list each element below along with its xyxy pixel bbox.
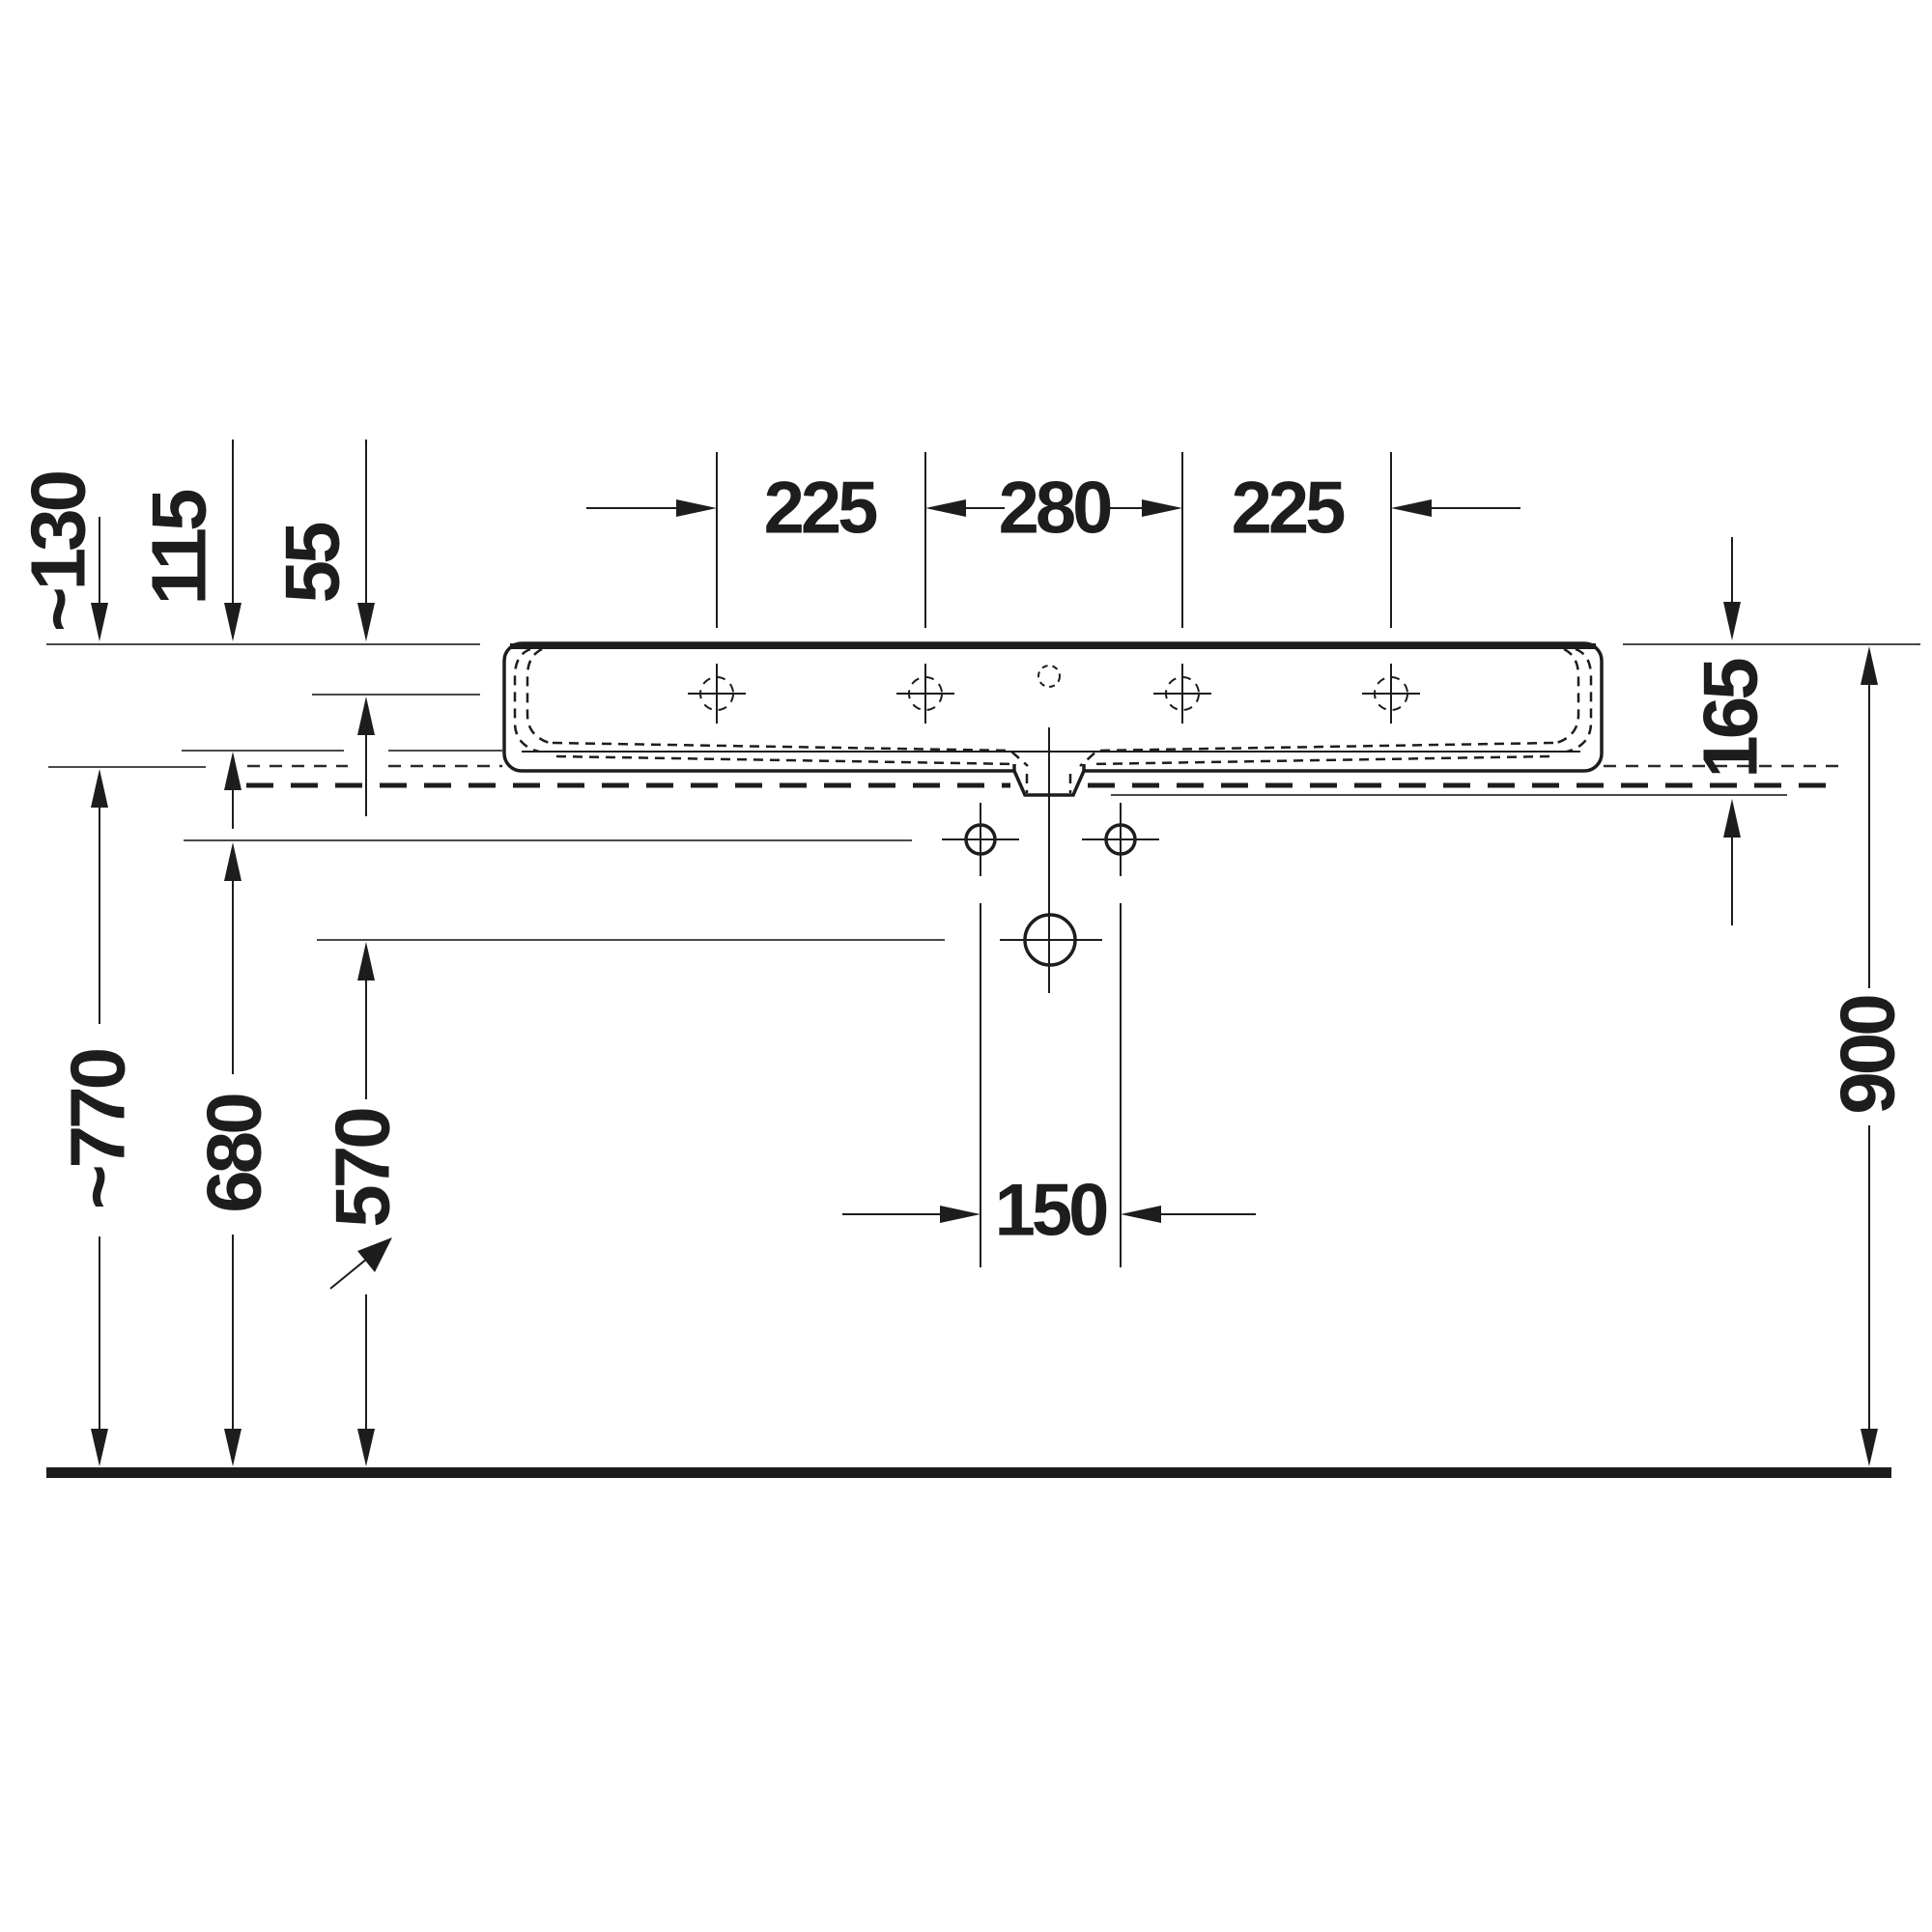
- arrowhead-up-icon: [91, 769, 108, 808]
- bowl-bottom-lower-right: [1092, 756, 1549, 764]
- bowl-wall-right-inner: [1553, 649, 1578, 744]
- arrowhead-down-icon: [357, 603, 375, 641]
- arrowhead-right-icon: [676, 499, 717, 517]
- dim-label-770: ~770: [55, 1049, 141, 1209]
- dim-label-680: 680: [191, 1094, 277, 1213]
- technical-drawing-page: 225 280 225 ~130 115 55 ~770 680 570: [0, 0, 1932, 1932]
- dim-label-225-left: 225: [764, 468, 878, 550]
- arrowhead-up-icon: [224, 752, 241, 790]
- arrowhead-up-icon: [1861, 646, 1878, 685]
- arrowhead-up-icon: [357, 942, 375, 980]
- arrowhead-down-icon: [1723, 602, 1741, 640]
- reference-lines: [46, 644, 1920, 940]
- basin-outline: [504, 643, 1602, 776]
- arrowhead-left-icon: [1391, 499, 1432, 517]
- arrowhead-up-icon: [224, 842, 241, 881]
- arrowhead-left-icon: [925, 499, 966, 517]
- arrowhead-right-icon: [940, 1206, 980, 1223]
- dim-label-570: 570: [320, 1109, 406, 1228]
- center-hole-marker: [1038, 666, 1060, 687]
- dim-label-115: 115: [136, 490, 222, 606]
- dim-label-165: 165: [1688, 659, 1774, 779]
- dim-label-130: ~130: [15, 471, 101, 632]
- dim-label-55: 55: [270, 523, 355, 603]
- faucet-hole-markers: [688, 664, 1420, 724]
- dimension-heights-left: ~770 680 570: [55, 769, 406, 1466]
- faucet-hole-2: [896, 664, 954, 724]
- arrowhead-up-icon: [1723, 799, 1741, 838]
- dim-label-150: 150: [995, 1170, 1108, 1252]
- faucet-hole-4: [1362, 664, 1420, 724]
- arrowhead-up-icon: [357, 696, 375, 735]
- faucet-hole-3: [1153, 664, 1211, 724]
- dimension-900: 900: [1825, 646, 1911, 1466]
- dimension-top-row: 225 280 225: [586, 452, 1520, 628]
- fixing-bolt-left: [942, 803, 1019, 876]
- washbasin-dimension-diagram: 225 280 225 ~130 115 55 ~770 680 570: [0, 0, 1932, 1932]
- arrowhead-right-icon: [1142, 499, 1182, 517]
- dimension-165: 165: [1688, 537, 1774, 925]
- arrowhead-down-icon: [91, 1429, 108, 1466]
- faucet-hole-1: [688, 664, 746, 724]
- diagonal-arrow-ne-icon: [357, 1237, 392, 1272]
- bowl-wall-left-inner: [527, 649, 553, 744]
- dim-label-280: 280: [999, 468, 1112, 550]
- fixing-bolt-right: [1082, 803, 1159, 876]
- dim-label-225-right: 225: [1232, 468, 1346, 550]
- arrowhead-down-icon: [1861, 1429, 1878, 1466]
- dimension-left-upper: ~130 115 55: [15, 440, 376, 829]
- dim-label-900: 900: [1825, 996, 1911, 1115]
- arrowhead-down-icon: [224, 603, 241, 641]
- bowl-bottom-lower-left: [556, 756, 1016, 764]
- arrowhead-left-icon: [1121, 1206, 1161, 1223]
- floor-line: [46, 1467, 1891, 1478]
- arrowhead-down-icon: [357, 1429, 375, 1466]
- arrowhead-down-icon: [224, 1429, 241, 1466]
